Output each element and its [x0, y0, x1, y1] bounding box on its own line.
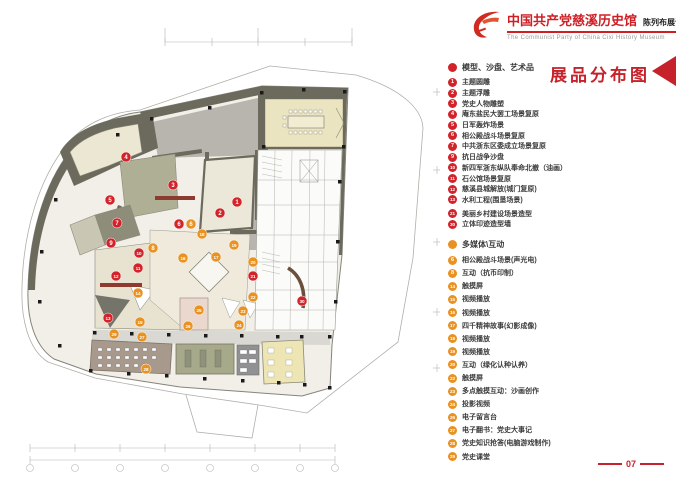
item-number-badge: 19 — [448, 347, 457, 356]
legend-item: 21美丽乡村建设场景造型 — [448, 208, 648, 219]
legend-item: 3党史人物雕塑 — [448, 98, 648, 109]
plan-marker: 27 — [137, 332, 147, 342]
item-label: 主题圆雕 — [462, 77, 490, 87]
legend-item: 13水利工程(围垦场景) — [448, 195, 648, 206]
plan-marker: 10 — [134, 248, 144, 258]
office-room-gray — [237, 345, 259, 375]
legend-section-header: 多媒体\互动 — [448, 239, 648, 250]
classroom — [90, 340, 172, 374]
item-number-badge: 14 — [448, 282, 457, 291]
plan-marker: 16 — [178, 253, 188, 263]
item-label: 美丽乡村建设场景造型 — [462, 209, 532, 219]
legend-section-header: 模型、沙盘、艺术品 — [448, 62, 648, 73]
plan-marker: 8 — [148, 243, 158, 253]
svg-text:12: 12 — [113, 274, 119, 279]
item-label: 立体印迹造型墙 — [462, 219, 511, 229]
svg-text:11: 11 — [136, 266, 141, 271]
item-label: 电子留言台 — [462, 412, 497, 422]
office-room-yellow — [262, 340, 305, 384]
legend-item: 6相公殿战斗场景(声光电) — [448, 254, 648, 267]
red-dot-icon — [448, 63, 457, 72]
svg-text:19: 19 — [231, 243, 237, 248]
svg-text:18: 18 — [199, 232, 205, 237]
plan-marker: 25 — [194, 305, 204, 315]
item-number-badge: 11 — [448, 174, 457, 183]
legend-item: 27电子翻书：党史大事记 — [448, 424, 648, 437]
item-label: 党史知识抢答(电脑游戏制作) — [462, 438, 551, 448]
legend-item: 14触摸屏 — [448, 280, 648, 293]
legend-item: 30立体印迹造型墙 — [448, 219, 648, 230]
item-label: 新四军浙东纵队奉命北撤（油画） — [462, 163, 567, 173]
item-label: 视频播放 — [462, 308, 490, 318]
legend-item: 2主题浮雕 — [448, 88, 648, 99]
item-number-badge: 2 — [448, 89, 457, 98]
item-number-badge: 28 — [448, 439, 457, 448]
exhibit-legend: 模型、沙盘、艺术品 1主题圆雕2主题浮雕3党史人物雕塑4庵东盐民大罢工场景复原5… — [448, 62, 648, 463]
item-number-badge: 24 — [448, 400, 457, 409]
legend-item: 11石公馆场景复原 — [448, 173, 648, 184]
svg-text:25: 25 — [196, 308, 202, 313]
item-label: 四千精神故事(幻影成像) — [462, 321, 537, 331]
plan-marker: 23 — [238, 306, 248, 316]
item-number-badge: 20 — [448, 360, 457, 369]
party-emblem-logo — [468, 10, 502, 38]
plan-marker: 4 — [121, 152, 131, 162]
legend-section-title: 多媒体\互动 — [462, 239, 504, 250]
item-label: 慈溪县城解放(城门复原) — [462, 184, 537, 194]
museum-title: 中国共产党慈溪历史馆 — [507, 10, 637, 29]
museum-title-english: The Communist Party of China Cixi Histor… — [507, 35, 676, 41]
item-number-badge: 27 — [448, 426, 457, 435]
plan-marker: 12 — [111, 271, 121, 281]
legend-item: 20互动（绿化认种认养） — [448, 358, 648, 371]
item-label: 中共浙东区委成立场景复原 — [462, 141, 546, 151]
item-label: 党史课堂 — [462, 452, 490, 462]
page-number: 07 — [598, 459, 664, 469]
page-number-dash — [598, 463, 622, 465]
legend-item: 16视频播放 — [448, 306, 648, 319]
orange-dot-icon — [448, 240, 457, 249]
svg-text:22: 22 — [250, 295, 256, 300]
legend-item: 15视频播放 — [448, 293, 648, 306]
site-boundary-notch — [186, 395, 258, 438]
plan-marker: 7 — [112, 218, 122, 228]
item-number-badge: 6 — [448, 131, 457, 140]
header-divider — [507, 31, 676, 33]
legend-section-multimedia: 多媒体\互动 6相公殿战斗场景(声光电)8互动（抗币印制）14触摸屏15视频播放… — [448, 239, 648, 464]
svg-text:30: 30 — [299, 299, 305, 304]
legend-item: 10新四军浙东纵队奉命北撤（油画） — [448, 163, 648, 174]
plan-marker: 3 — [168, 180, 178, 190]
svg-text:14: 14 — [135, 291, 141, 296]
item-label: 视频播放 — [462, 347, 490, 357]
item-label: 视频播放 — [462, 294, 490, 304]
item-number-badge: 22 — [448, 374, 457, 383]
document-subtitle: 陈列布展设计施工方案 — [643, 17, 676, 28]
central-hall — [200, 156, 255, 232]
legend-item: 19视频播放 — [448, 345, 648, 358]
conference-room — [264, 98, 344, 148]
item-number-badge: 30 — [448, 220, 457, 229]
plan-marker: 29 — [109, 329, 119, 339]
legend-item: 28党史知识抢答(电脑游戏制作) — [448, 437, 648, 450]
legend-section-title: 模型、沙盘、艺术品 — [462, 62, 534, 73]
svg-text:23: 23 — [240, 309, 246, 314]
legend-item: 18视频播放 — [448, 332, 648, 345]
top-dimension-line — [165, 28, 352, 46]
legend-item: 7中共浙东区委成立场景复原 — [448, 141, 648, 152]
svg-text:29: 29 — [111, 332, 117, 337]
plan-marker: 30 — [297, 296, 307, 306]
plan-marker: 1 — [232, 197, 242, 207]
plan-marker: 22 — [248, 292, 258, 302]
svg-text:15: 15 — [137, 320, 143, 325]
plan-marker: 2 — [215, 208, 225, 218]
legend-item: 9抗日战争沙盘 — [448, 152, 648, 163]
item-label: 庵东盐民大罢工场景复原 — [462, 109, 539, 119]
bottom-dimension-lines — [30, 444, 335, 464]
svg-text:10: 10 — [136, 251, 142, 256]
item-label: 投影视频 — [462, 399, 490, 409]
plan-marker: 21 — [248, 271, 258, 281]
item-label: 相公殿战斗场景(声光电) — [462, 255, 537, 265]
item-label: 电子翻书：党史大事记 — [462, 425, 532, 435]
plan-marker: 6 — [174, 219, 184, 229]
item-number-badge: 8 — [448, 269, 457, 278]
item-number-badge: 15 — [448, 295, 457, 304]
item-number-badge: 1 — [448, 78, 457, 87]
svg-text:24: 24 — [236, 323, 242, 328]
legend-item: 5日军轰炸场景 — [448, 120, 648, 131]
svg-text:21: 21 — [250, 274, 256, 279]
plan-marker: 20 — [248, 257, 258, 267]
item-label: 抗日战争沙盘 — [462, 152, 504, 162]
legend-section-models: 模型、沙盘、艺术品 1主题圆雕2主题浮雕3党史人物雕塑4庵东盐民大罢工场景复原5… — [448, 62, 648, 230]
plan-marker: 9 — [106, 238, 116, 248]
grid-bubbles — [27, 465, 339, 472]
item-number-badge: 16 — [448, 308, 457, 317]
plan-marker: 17 — [211, 252, 221, 262]
legend-items-multimedia: 6相公殿战斗场景(声光电)8互动（抗币印制）14触摸屏15视频播放16视频播放1… — [448, 254, 648, 464]
item-label: 互动（绿化认种认养） — [462, 360, 532, 370]
item-number-badge: 9 — [448, 153, 457, 162]
plan-marker: 28 — [141, 364, 151, 374]
item-number-badge: 17 — [448, 321, 457, 330]
plan-marker: 18 — [197, 229, 207, 239]
item-label: 水利工程(围垦场景) — [462, 195, 523, 205]
legend-item: 8互动（抗币印制） — [448, 267, 648, 280]
item-label: 多点触摸互动：沙画创作 — [462, 386, 539, 396]
header: 中国共产党慈溪历史馆 陈列布展设计施工方案 The Communist Part… — [468, 10, 676, 41]
plan-marker: 14 — [133, 288, 143, 298]
item-number-badge: 23 — [448, 387, 457, 396]
plan-marker: 26 — [183, 321, 193, 331]
item-number-badge: 21 — [448, 209, 457, 218]
item-number-badge: 26 — [448, 413, 457, 422]
svg-text:16: 16 — [180, 256, 186, 261]
page-number-value: 07 — [626, 459, 636, 469]
plan-marker: 11 — [133, 263, 143, 273]
plan-marker: 19 — [229, 240, 239, 250]
plan-marker: 13 — [103, 313, 113, 323]
item-label: 日军轰炸场景 — [462, 120, 504, 130]
page-number-dash — [640, 463, 664, 465]
item-label: 互动（抗币印制） — [462, 268, 518, 278]
svg-text:28: 28 — [143, 367, 149, 372]
item-label: 党史人物雕塑 — [462, 99, 504, 109]
side-ticks — [433, 88, 440, 372]
svg-text:17: 17 — [213, 255, 219, 260]
plan-marker: 15 — [135, 317, 145, 327]
svg-text:26: 26 — [185, 324, 191, 329]
legend-item: 12慈溪县城解放(城门复原) — [448, 184, 648, 195]
item-number-badge: 4 — [448, 110, 457, 119]
activity-room — [176, 344, 234, 374]
item-number-badge: 10 — [448, 163, 457, 172]
legend-item: 23多点触摸互动：沙画创作 — [448, 385, 648, 398]
floor-plan: 1234567910111213213068141516171819202223… — [0, 0, 440, 477]
svg-text:20: 20 — [250, 260, 256, 265]
item-number-badge: 29 — [448, 452, 457, 461]
item-number-badge: 13 — [448, 195, 457, 204]
legend-item: 17四千精神故事(幻影成像) — [448, 319, 648, 332]
design-sheet-page: { "header": { "logo": "party-emblem-swoo… — [0, 0, 676, 477]
legend-item: 24投影视频 — [448, 398, 648, 411]
item-label: 相公殿战斗场景复原 — [462, 131, 525, 141]
item-label: 视频播放 — [462, 334, 490, 344]
item-number-badge: 5 — [448, 121, 457, 130]
legend-item: 22触摸屏 — [448, 371, 648, 384]
item-label: 主题浮雕 — [462, 88, 490, 98]
legend-items-models: 1主题圆雕2主题浮雕3党史人物雕塑4庵东盐民大罢工场景复原5日军轰炸场景6相公殿… — [448, 77, 648, 230]
legend-item: 1主题圆雕 — [448, 77, 648, 88]
item-label: 触摸屏 — [462, 373, 483, 383]
item-number-badge: 3 — [448, 99, 457, 108]
title-arrow-icon — [652, 56, 676, 86]
item-number-badge: 12 — [448, 185, 457, 194]
item-number-badge: 7 — [448, 142, 457, 151]
plan-marker: 5 — [105, 195, 115, 205]
svg-text:27: 27 — [139, 335, 145, 340]
svg-text:13: 13 — [105, 316, 111, 321]
item-number-badge: 18 — [448, 334, 457, 343]
plan-marker: 24 — [234, 320, 244, 330]
item-label: 石公馆场景复原 — [462, 174, 511, 184]
plan-marker: 6 — [186, 219, 196, 229]
legend-item: 6相公殿战斗场景复原 — [448, 130, 648, 141]
legend-item: 4庵东盐民大罢工场景复原 — [448, 109, 648, 120]
item-number-badge: 6 — [448, 256, 457, 265]
legend-item: 26电子留言台 — [448, 411, 648, 424]
item-label: 触摸屏 — [462, 281, 483, 291]
